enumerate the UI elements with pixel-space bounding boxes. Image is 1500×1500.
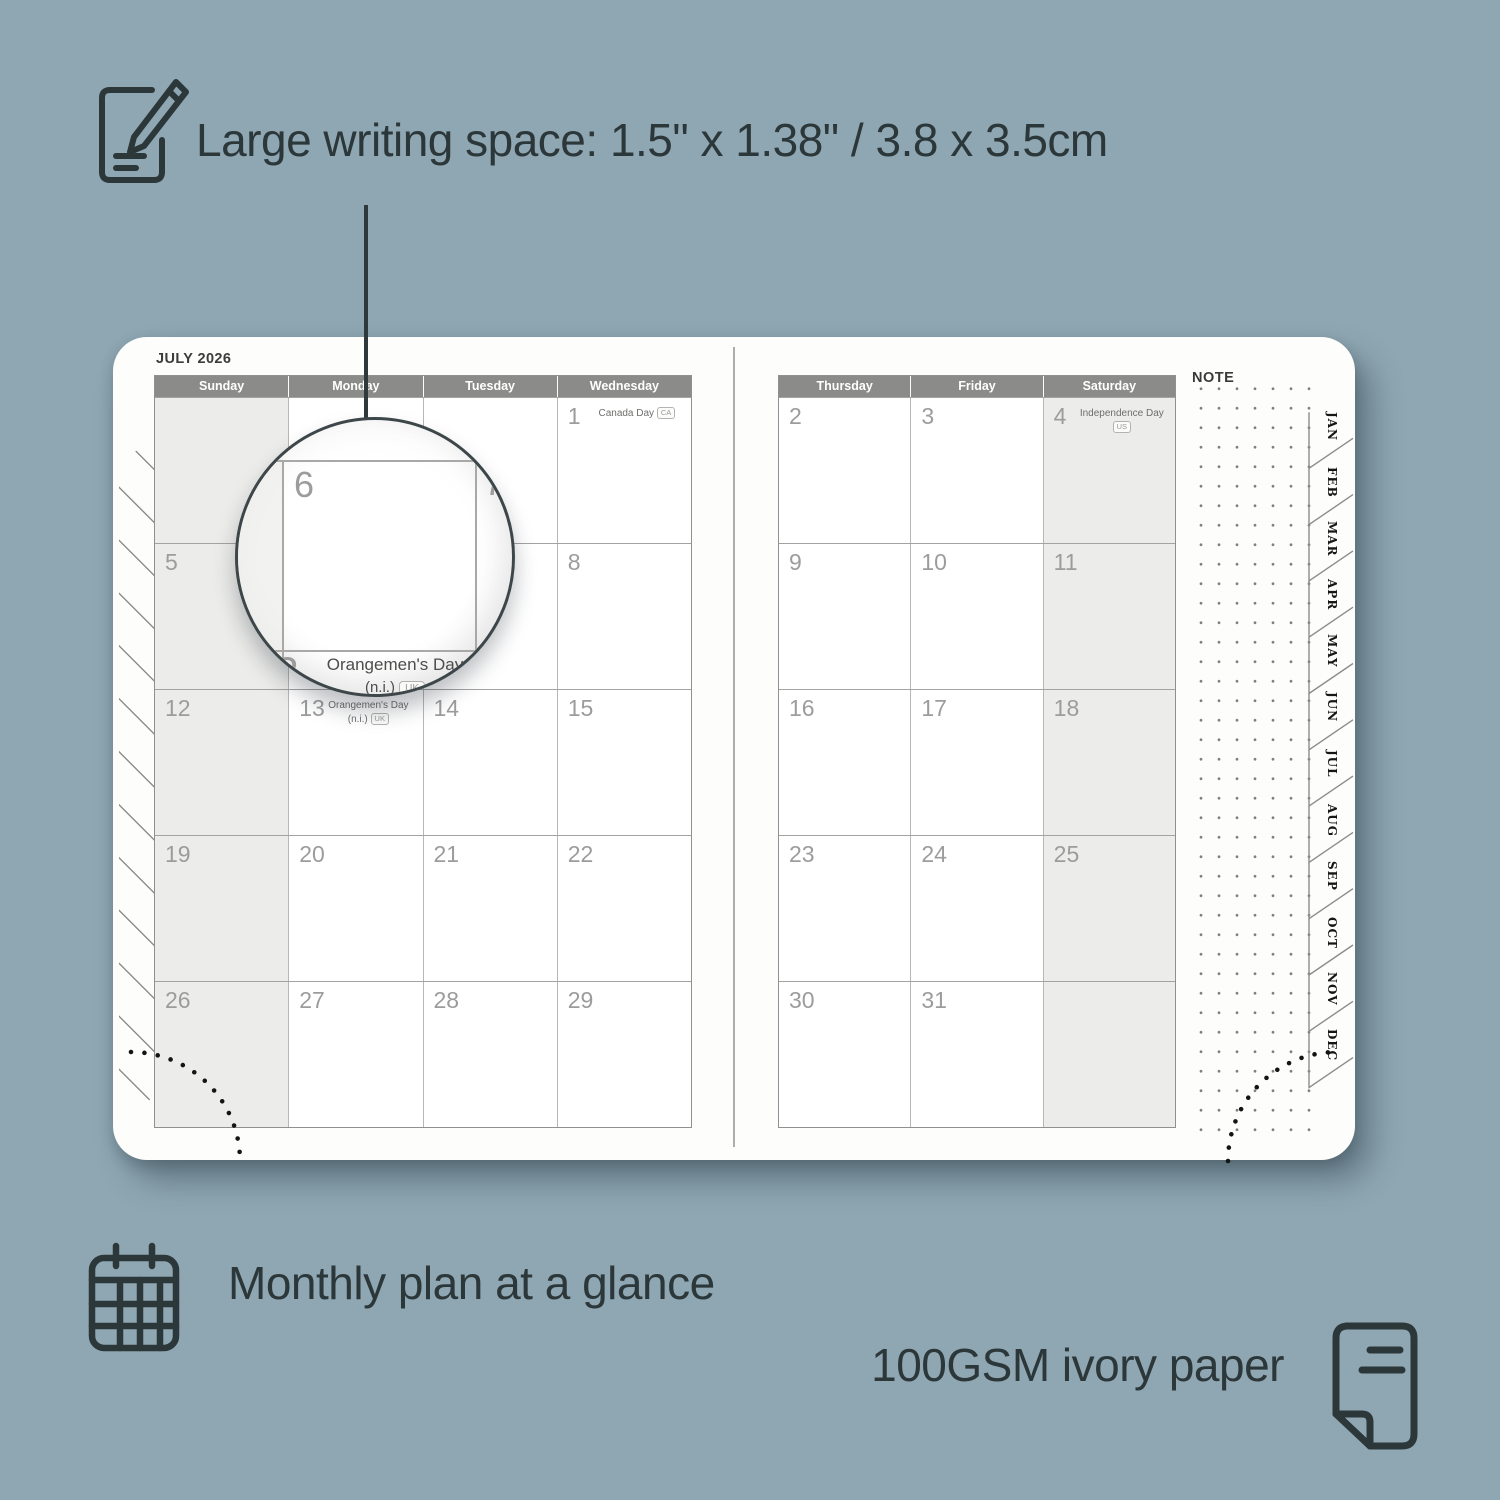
day-number: 5 bbox=[165, 549, 178, 576]
day-number: 2 bbox=[789, 403, 802, 430]
week-row: 161718 bbox=[779, 689, 1175, 835]
weekday-header: Sunday bbox=[155, 376, 288, 397]
calendar-cell: 11 bbox=[1043, 544, 1175, 689]
calendar-cell: 12 bbox=[155, 690, 288, 835]
weekday-header: Thursday bbox=[779, 376, 910, 397]
calendar-cell: 29 bbox=[557, 982, 691, 1127]
event-label: Orangemen's Day(n.i.) UK bbox=[319, 699, 417, 727]
weekday-header-row: SundayMondayTuesdayWednesday bbox=[155, 376, 691, 397]
paper-page-icon bbox=[1326, 1322, 1420, 1456]
day-number: 31 bbox=[921, 987, 947, 1014]
calendar-cell: 2 bbox=[779, 398, 910, 543]
month-tab-outlines bbox=[1307, 398, 1355, 1090]
day-number: 4 bbox=[1054, 403, 1067, 430]
calendar-cell bbox=[1043, 982, 1175, 1127]
spine-divider bbox=[733, 347, 735, 1147]
day-number: 19 bbox=[165, 841, 191, 868]
country-badge: US bbox=[1113, 421, 1131, 433]
right-page: ThursdayFridaySaturday234Independence Da… bbox=[778, 375, 1176, 1128]
calendar-cell: 18 bbox=[1043, 690, 1175, 835]
weekday-header-row: ThursdayFridaySaturday bbox=[779, 376, 1175, 397]
calendar-cell: 28 bbox=[423, 982, 557, 1127]
calendar-cell: 10 bbox=[910, 544, 1042, 689]
week-row: 91011 bbox=[779, 543, 1175, 689]
calendar-cell: 3 bbox=[910, 398, 1042, 543]
event-label: Independence Day US bbox=[1074, 407, 1170, 435]
day-number: 8 bbox=[568, 549, 581, 576]
week-row: 19202122 bbox=[155, 835, 691, 981]
calendar-cell: 20 bbox=[288, 836, 422, 981]
magnified-grid-line bbox=[238, 460, 512, 462]
week-row: 3031 bbox=[779, 981, 1175, 1127]
day-number: 25 bbox=[1054, 841, 1080, 868]
day-number: 14 bbox=[434, 695, 460, 722]
calendar-cell: 26 bbox=[155, 982, 288, 1127]
day-number: 18 bbox=[1054, 695, 1080, 722]
magnified-day-number: 13 bbox=[252, 648, 299, 696]
week-row: 232425 bbox=[779, 835, 1175, 981]
week-row: 26272829 bbox=[155, 981, 691, 1127]
magnified-grid-line bbox=[475, 420, 477, 694]
calendar-cell: 4Independence Day US bbox=[1043, 398, 1175, 543]
magnifier-circle: 6 7 13 Orangemen's Day (n.i.) UK bbox=[235, 417, 515, 697]
calendar-cell: 21 bbox=[423, 836, 557, 981]
calendar-cell: 1Canada Day CA bbox=[557, 398, 691, 543]
weekday-header: Tuesday bbox=[423, 376, 557, 397]
calendar-cell: 14 bbox=[423, 690, 557, 835]
product-image: Large writing space: 1.5" x 1.38" / 3.8 … bbox=[0, 0, 1500, 1500]
day-number: 23 bbox=[789, 841, 815, 868]
day-number: 22 bbox=[568, 841, 594, 868]
top-annotation-text: Large writing space: 1.5" x 1.38" / 3.8 … bbox=[196, 115, 1108, 166]
magnified-day-number: 7 bbox=[484, 462, 504, 504]
calendar-cell: 22 bbox=[557, 836, 691, 981]
day-number: 20 bbox=[299, 841, 325, 868]
magnified-event-text: (n.i.) bbox=[365, 679, 395, 696]
bottom-right-annotation-text: 100GSM ivory paper bbox=[871, 1340, 1284, 1391]
calendar-cell: 23 bbox=[779, 836, 910, 981]
magnified-event-line1: Orangemen's Day bbox=[294, 655, 496, 675]
calendar-cell: 25 bbox=[1043, 836, 1175, 981]
calendar-grid-icon bbox=[84, 1240, 184, 1354]
day-number: 9 bbox=[789, 549, 802, 576]
notepad-pencil-icon bbox=[92, 76, 192, 188]
day-number: 24 bbox=[921, 841, 947, 868]
weekday-header: Monday bbox=[288, 376, 422, 397]
day-number: 26 bbox=[165, 987, 191, 1014]
day-number: 11 bbox=[1054, 549, 1078, 576]
day-number: 1 bbox=[568, 403, 581, 430]
week-row: 1213Orangemen's Day(n.i.) UK1415 bbox=[155, 689, 691, 835]
calendar-cell: 13Orangemen's Day(n.i.) UK bbox=[288, 690, 422, 835]
day-number: 10 bbox=[921, 549, 947, 576]
calendar-cell: 8 bbox=[557, 544, 691, 689]
country-badge: UK bbox=[371, 713, 389, 725]
weekday-header: Friday bbox=[910, 376, 1042, 397]
calendar-cell: 15 bbox=[557, 690, 691, 835]
day-number: 15 bbox=[568, 695, 594, 722]
week-row: 234Independence Day US bbox=[779, 397, 1175, 543]
calendar-cell: 16 bbox=[779, 690, 910, 835]
calendar-cell: 27 bbox=[288, 982, 422, 1127]
day-number: 29 bbox=[568, 987, 594, 1014]
month-title: JULY 2026 bbox=[156, 351, 231, 367]
weekday-header: Wednesday bbox=[557, 376, 691, 397]
day-number: 17 bbox=[921, 695, 947, 722]
day-number: 30 bbox=[789, 987, 815, 1014]
month-tabs: JANFEBMARAPRMAYJUNJULAUGSEPOCTNOVDEC bbox=[1307, 398, 1355, 1090]
calendar-cell: 17 bbox=[910, 690, 1042, 835]
note-dot-grid bbox=[1188, 377, 1316, 1137]
callout-connector-line bbox=[364, 205, 368, 419]
calendar-cell: 19 bbox=[155, 836, 288, 981]
note-label: NOTE bbox=[1192, 370, 1242, 386]
weekday-header: Saturday bbox=[1043, 376, 1175, 397]
magnified-day-number: 6 bbox=[294, 464, 314, 506]
day-number: 3 bbox=[921, 403, 934, 430]
day-number: 12 bbox=[165, 695, 191, 722]
event-label: Canada Day CA bbox=[588, 407, 686, 421]
day-number: 28 bbox=[434, 987, 460, 1014]
calendar-cell: 24 bbox=[910, 836, 1042, 981]
bottom-left-annotation-text: Monthly plan at a glance bbox=[228, 1258, 715, 1309]
day-number: 27 bbox=[299, 987, 325, 1014]
calendar-cell: 31 bbox=[910, 982, 1042, 1127]
calendar-cell: 30 bbox=[779, 982, 910, 1127]
day-number: 16 bbox=[789, 695, 815, 722]
day-number: 21 bbox=[434, 841, 460, 868]
calendar-cell: 9 bbox=[779, 544, 910, 689]
country-badge: CA bbox=[657, 407, 675, 419]
